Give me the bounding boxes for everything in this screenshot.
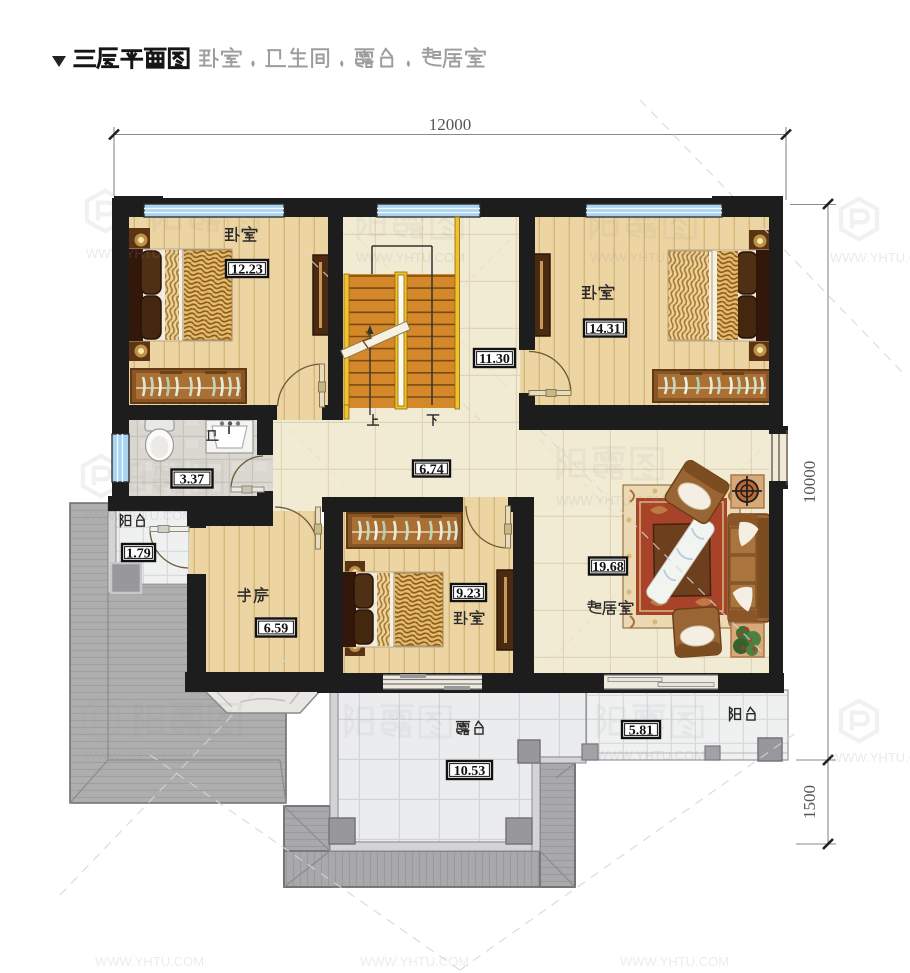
svg-text:6.74: 6.74 xyxy=(419,463,444,478)
svg-text:WWW.YHTU.COM: WWW.YHTU.COM xyxy=(84,748,193,763)
svg-text:WWW.YHTU.COM: WWW.YHTU.COM xyxy=(86,246,195,261)
svg-text:WWW.YHTU.COM: WWW.YHTU.COM xyxy=(95,954,204,969)
svg-text:14.31: 14.31 xyxy=(589,322,621,337)
svg-text:5.81: 5.81 xyxy=(629,724,654,739)
svg-text:12000: 12000 xyxy=(429,115,472,134)
svg-text:1.79: 1.79 xyxy=(126,547,151,562)
svg-text:WWW.YHTU.COM: WWW.YHTU.COM xyxy=(596,748,705,763)
svg-text:WWW.YHTU.COM: WWW.YHTU.COM xyxy=(830,750,910,765)
svg-text:9.23: 9.23 xyxy=(456,587,481,602)
svg-text:1500: 1500 xyxy=(800,785,819,819)
svg-text:10.53: 10.53 xyxy=(454,764,486,779)
svg-text:WWW.YHTU.COM: WWW.YHTU.COM xyxy=(590,250,699,265)
svg-text:WWW.YHTU.COM: WWW.YHTU.COM xyxy=(830,250,910,265)
svg-text:3.37: 3.37 xyxy=(180,473,205,488)
svg-text:6.59: 6.59 xyxy=(264,622,289,637)
svg-text:WWW.YHTU.COM: WWW.YHTU.COM xyxy=(360,954,469,969)
svg-text:19.68: 19.68 xyxy=(592,560,624,575)
svg-text:WWW.YHTU.COM: WWW.YHTU.COM xyxy=(620,954,729,969)
svg-text:11.30: 11.30 xyxy=(479,352,510,367)
svg-text:10000: 10000 xyxy=(800,461,819,504)
svg-text:12.23: 12.23 xyxy=(231,263,263,278)
